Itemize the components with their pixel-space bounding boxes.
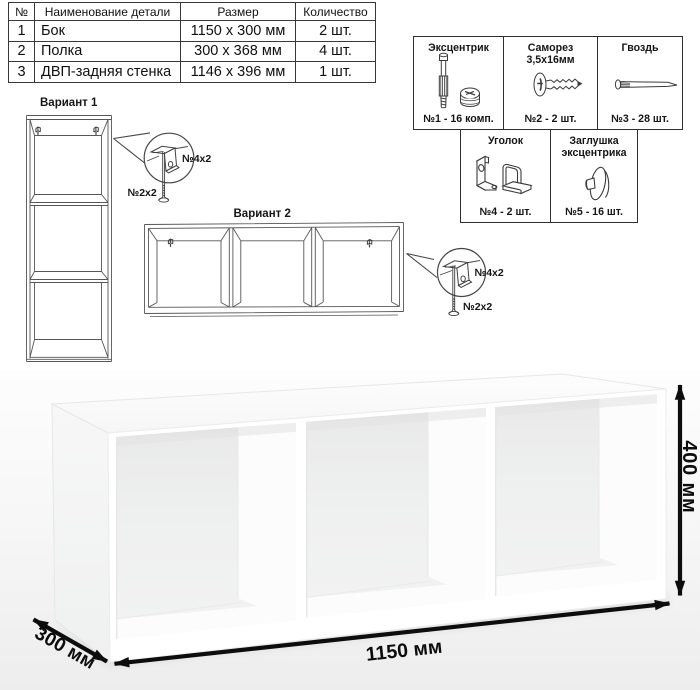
- svg-text:400 мм: 400 мм: [678, 440, 700, 513]
